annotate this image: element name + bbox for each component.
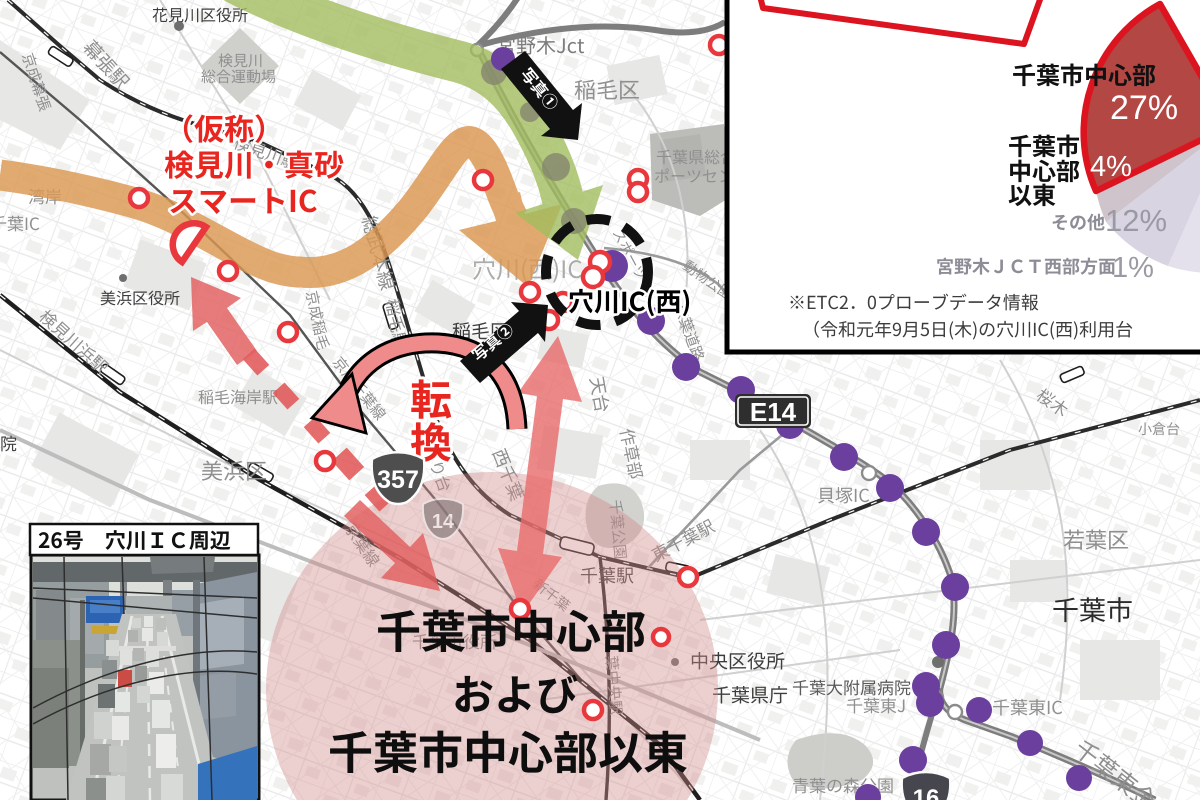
- svg-text:27%: 27%: [1110, 89, 1178, 127]
- svg-text:4%: 4%: [1090, 151, 1132, 183]
- svg-text:12%: 12%: [1105, 203, 1167, 238]
- svg-text:14: 14: [432, 511, 455, 533]
- svg-text:16: 16: [913, 785, 940, 800]
- svg-text:E14: E14: [750, 397, 797, 427]
- svg-text:357: 357: [377, 466, 419, 494]
- svg-text:1%: 1%: [1112, 252, 1154, 284]
